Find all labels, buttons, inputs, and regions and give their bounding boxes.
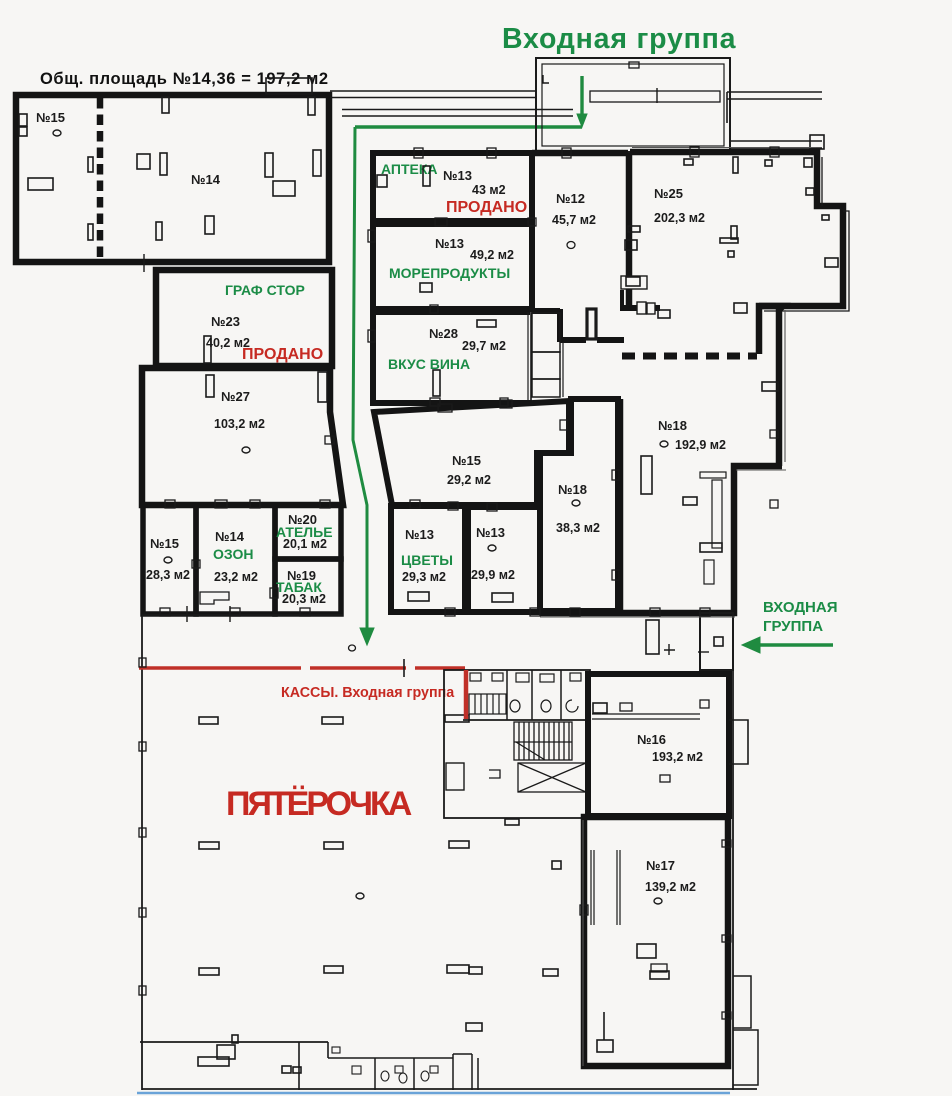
svg-text:28,3 м2: 28,3 м2 bbox=[146, 568, 190, 582]
svg-text:192,9 м2: 192,9 м2 bbox=[675, 438, 726, 452]
svg-text:29,7 м2: 29,7 м2 bbox=[462, 339, 506, 353]
svg-text:№23: №23 bbox=[211, 314, 240, 329]
svg-text:№13: №13 bbox=[476, 525, 505, 540]
svg-text:АПТЕКА: АПТЕКА bbox=[381, 161, 438, 177]
svg-text:МОРЕПРОДУКТЫ: МОРЕПРОДУКТЫ bbox=[389, 265, 510, 281]
svg-text:№15: №15 bbox=[452, 453, 481, 468]
svg-text:№13: №13 bbox=[405, 527, 434, 542]
svg-text:49,2 м2: 49,2 м2 bbox=[470, 248, 514, 262]
svg-text:ВХОДНАЯ: ВХОДНАЯ bbox=[763, 599, 837, 616]
svg-text:Входная группа: Входная группа bbox=[502, 23, 737, 55]
svg-text:20,1 м2: 20,1 м2 bbox=[283, 537, 327, 551]
svg-text:№25: №25 bbox=[654, 186, 683, 201]
svg-text:139,2 м2: 139,2 м2 bbox=[645, 880, 696, 894]
svg-text:29,2 м2: 29,2 м2 bbox=[447, 473, 491, 487]
svg-text:№28: №28 bbox=[429, 326, 458, 341]
svg-text:№16: №16 bbox=[637, 732, 666, 747]
svg-text:193,2 м2: 193,2 м2 bbox=[652, 750, 703, 764]
svg-text:29,3 м2: 29,3 м2 bbox=[402, 570, 446, 584]
svg-text:103,2 м2: 103,2 м2 bbox=[214, 417, 265, 431]
svg-text:ВКУС ВИНА: ВКУС ВИНА bbox=[388, 356, 470, 372]
svg-text:ГРАФ СТОР: ГРАФ СТОР bbox=[225, 282, 305, 298]
svg-text:ПРОДАНО: ПРОДАНО bbox=[242, 346, 323, 363]
svg-text:№15: №15 bbox=[36, 110, 65, 125]
svg-text:20,3 м2: 20,3 м2 bbox=[282, 592, 326, 606]
svg-text:23,2 м2: 23,2 м2 bbox=[214, 570, 258, 584]
svg-text:№17: №17 bbox=[646, 858, 675, 873]
svg-text:№14: №14 bbox=[191, 172, 221, 187]
svg-text:№27: №27 bbox=[221, 389, 250, 404]
svg-text:№13: №13 bbox=[435, 236, 464, 251]
svg-text:45,7 м2: 45,7 м2 bbox=[552, 213, 596, 227]
svg-text:№18: №18 bbox=[658, 418, 687, 433]
svg-text:ОЗОН: ОЗОН bbox=[213, 546, 253, 562]
svg-text:ПРОДАНО: ПРОДАНО bbox=[446, 199, 527, 216]
svg-text:№14: №14 bbox=[215, 529, 245, 544]
svg-text:43 м2: 43 м2 bbox=[472, 183, 506, 197]
svg-text:№18: №18 bbox=[558, 482, 587, 497]
svg-text:ЦВЕТЫ: ЦВЕТЫ bbox=[401, 552, 453, 568]
svg-text:Общ. площадь №14,36 = 197,2 м2: Общ. площадь №14,36 = 197,2 м2 bbox=[40, 70, 329, 88]
svg-text:202,3 м2: 202,3 м2 bbox=[654, 211, 705, 225]
svg-text:ГРУППА: ГРУППА bbox=[763, 618, 823, 635]
svg-text:29,9 м2: 29,9 м2 bbox=[471, 568, 515, 582]
svg-text:КАССЫ. Входная группа: КАССЫ. Входная группа bbox=[281, 685, 455, 701]
svg-text:№12: №12 bbox=[556, 191, 585, 206]
svg-text:ПЯТЁРОЧКА: ПЯТЁРОЧКА bbox=[226, 785, 412, 823]
svg-text:№13: №13 bbox=[443, 168, 472, 183]
svg-text:38,3 м2: 38,3 м2 bbox=[556, 521, 600, 535]
svg-text:№15: №15 bbox=[150, 536, 179, 551]
